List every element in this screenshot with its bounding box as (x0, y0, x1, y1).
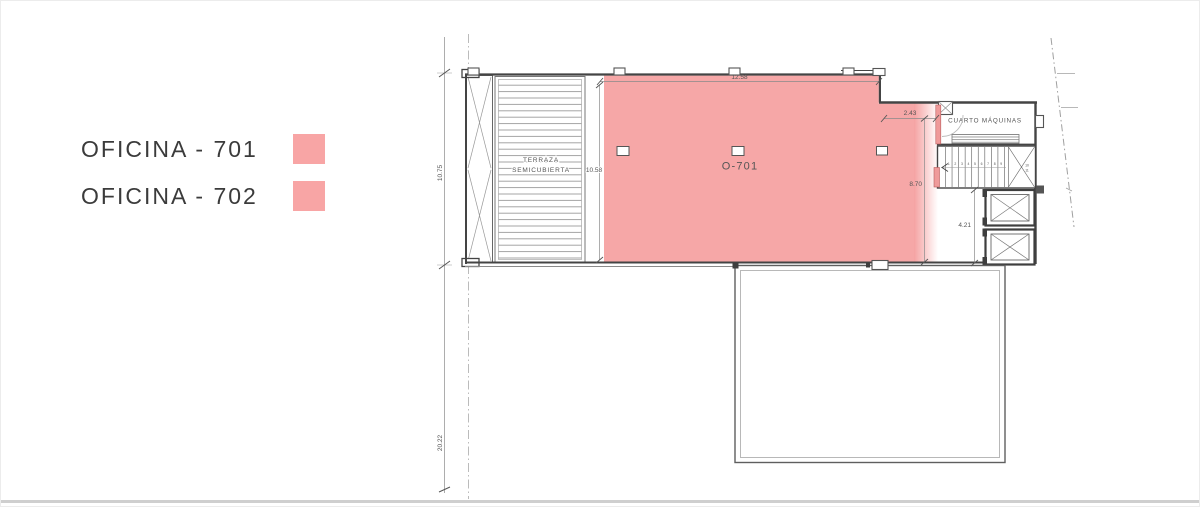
dimension-elevator-height: 4.21 (958, 187, 978, 266)
vent-grille (952, 135, 1019, 144)
svg-text:2.43: 2.43 (904, 110, 917, 117)
dimension-left-upper: 10.75 (437, 164, 444, 181)
svg-text:4.21: 4.21 (958, 222, 971, 229)
terrace-label-line2: SEMICUBIERTA (512, 167, 570, 174)
site-boundary-line (1051, 38, 1078, 227)
svg-text:10.58: 10.58 (586, 167, 603, 174)
office-701-label: O-701 (722, 161, 759, 173)
terrace-semicubierta: TERRAZA SEMICUBIERTA (462, 70, 585, 267)
lower-roof-outline (733, 261, 1006, 463)
highlighted-wall-stub (934, 168, 940, 188)
svg-text:8.70: 8.70 (909, 181, 922, 188)
machine-room-label: CUARTO MÁQUINAS (948, 116, 1022, 125)
svg-text:10: 10 (1025, 164, 1029, 168)
column-marker (872, 261, 888, 270)
wall-stub (1036, 116, 1044, 128)
svg-text:11: 11 (1025, 169, 1029, 173)
elevator-shafts (983, 189, 1035, 265)
staircase: 1234567891011 (934, 146, 1036, 188)
dimension-left-lower: 20.22 (437, 434, 444, 451)
svg-text:7: 7 (987, 162, 989, 166)
screenshot-root: OFICINA - 701 OFICINA - 702 (0, 0, 1200, 507)
svg-text:4: 4 (968, 162, 970, 166)
svg-text:2: 2 (954, 162, 956, 166)
svg-text:8: 8 (994, 162, 996, 166)
svg-text:9: 9 (1000, 162, 1002, 166)
svg-text:6: 6 (981, 162, 983, 166)
floor-plan-drawing: 10.75 20.22 TERRAZA SEMICUBIERTA (1, 1, 1200, 507)
svg-text:1: 1 (948, 162, 950, 166)
svg-text:12.58: 12.58 (731, 74, 748, 81)
svg-text:3: 3 (961, 162, 963, 166)
terrace-label-line1: TERRAZA (523, 157, 559, 164)
svg-text:5: 5 (974, 162, 976, 166)
highlighted-wall-stub (936, 105, 941, 144)
page-bottom-divider (1, 500, 1199, 503)
dimension-terrace-height: 10.58 (586, 82, 603, 263)
